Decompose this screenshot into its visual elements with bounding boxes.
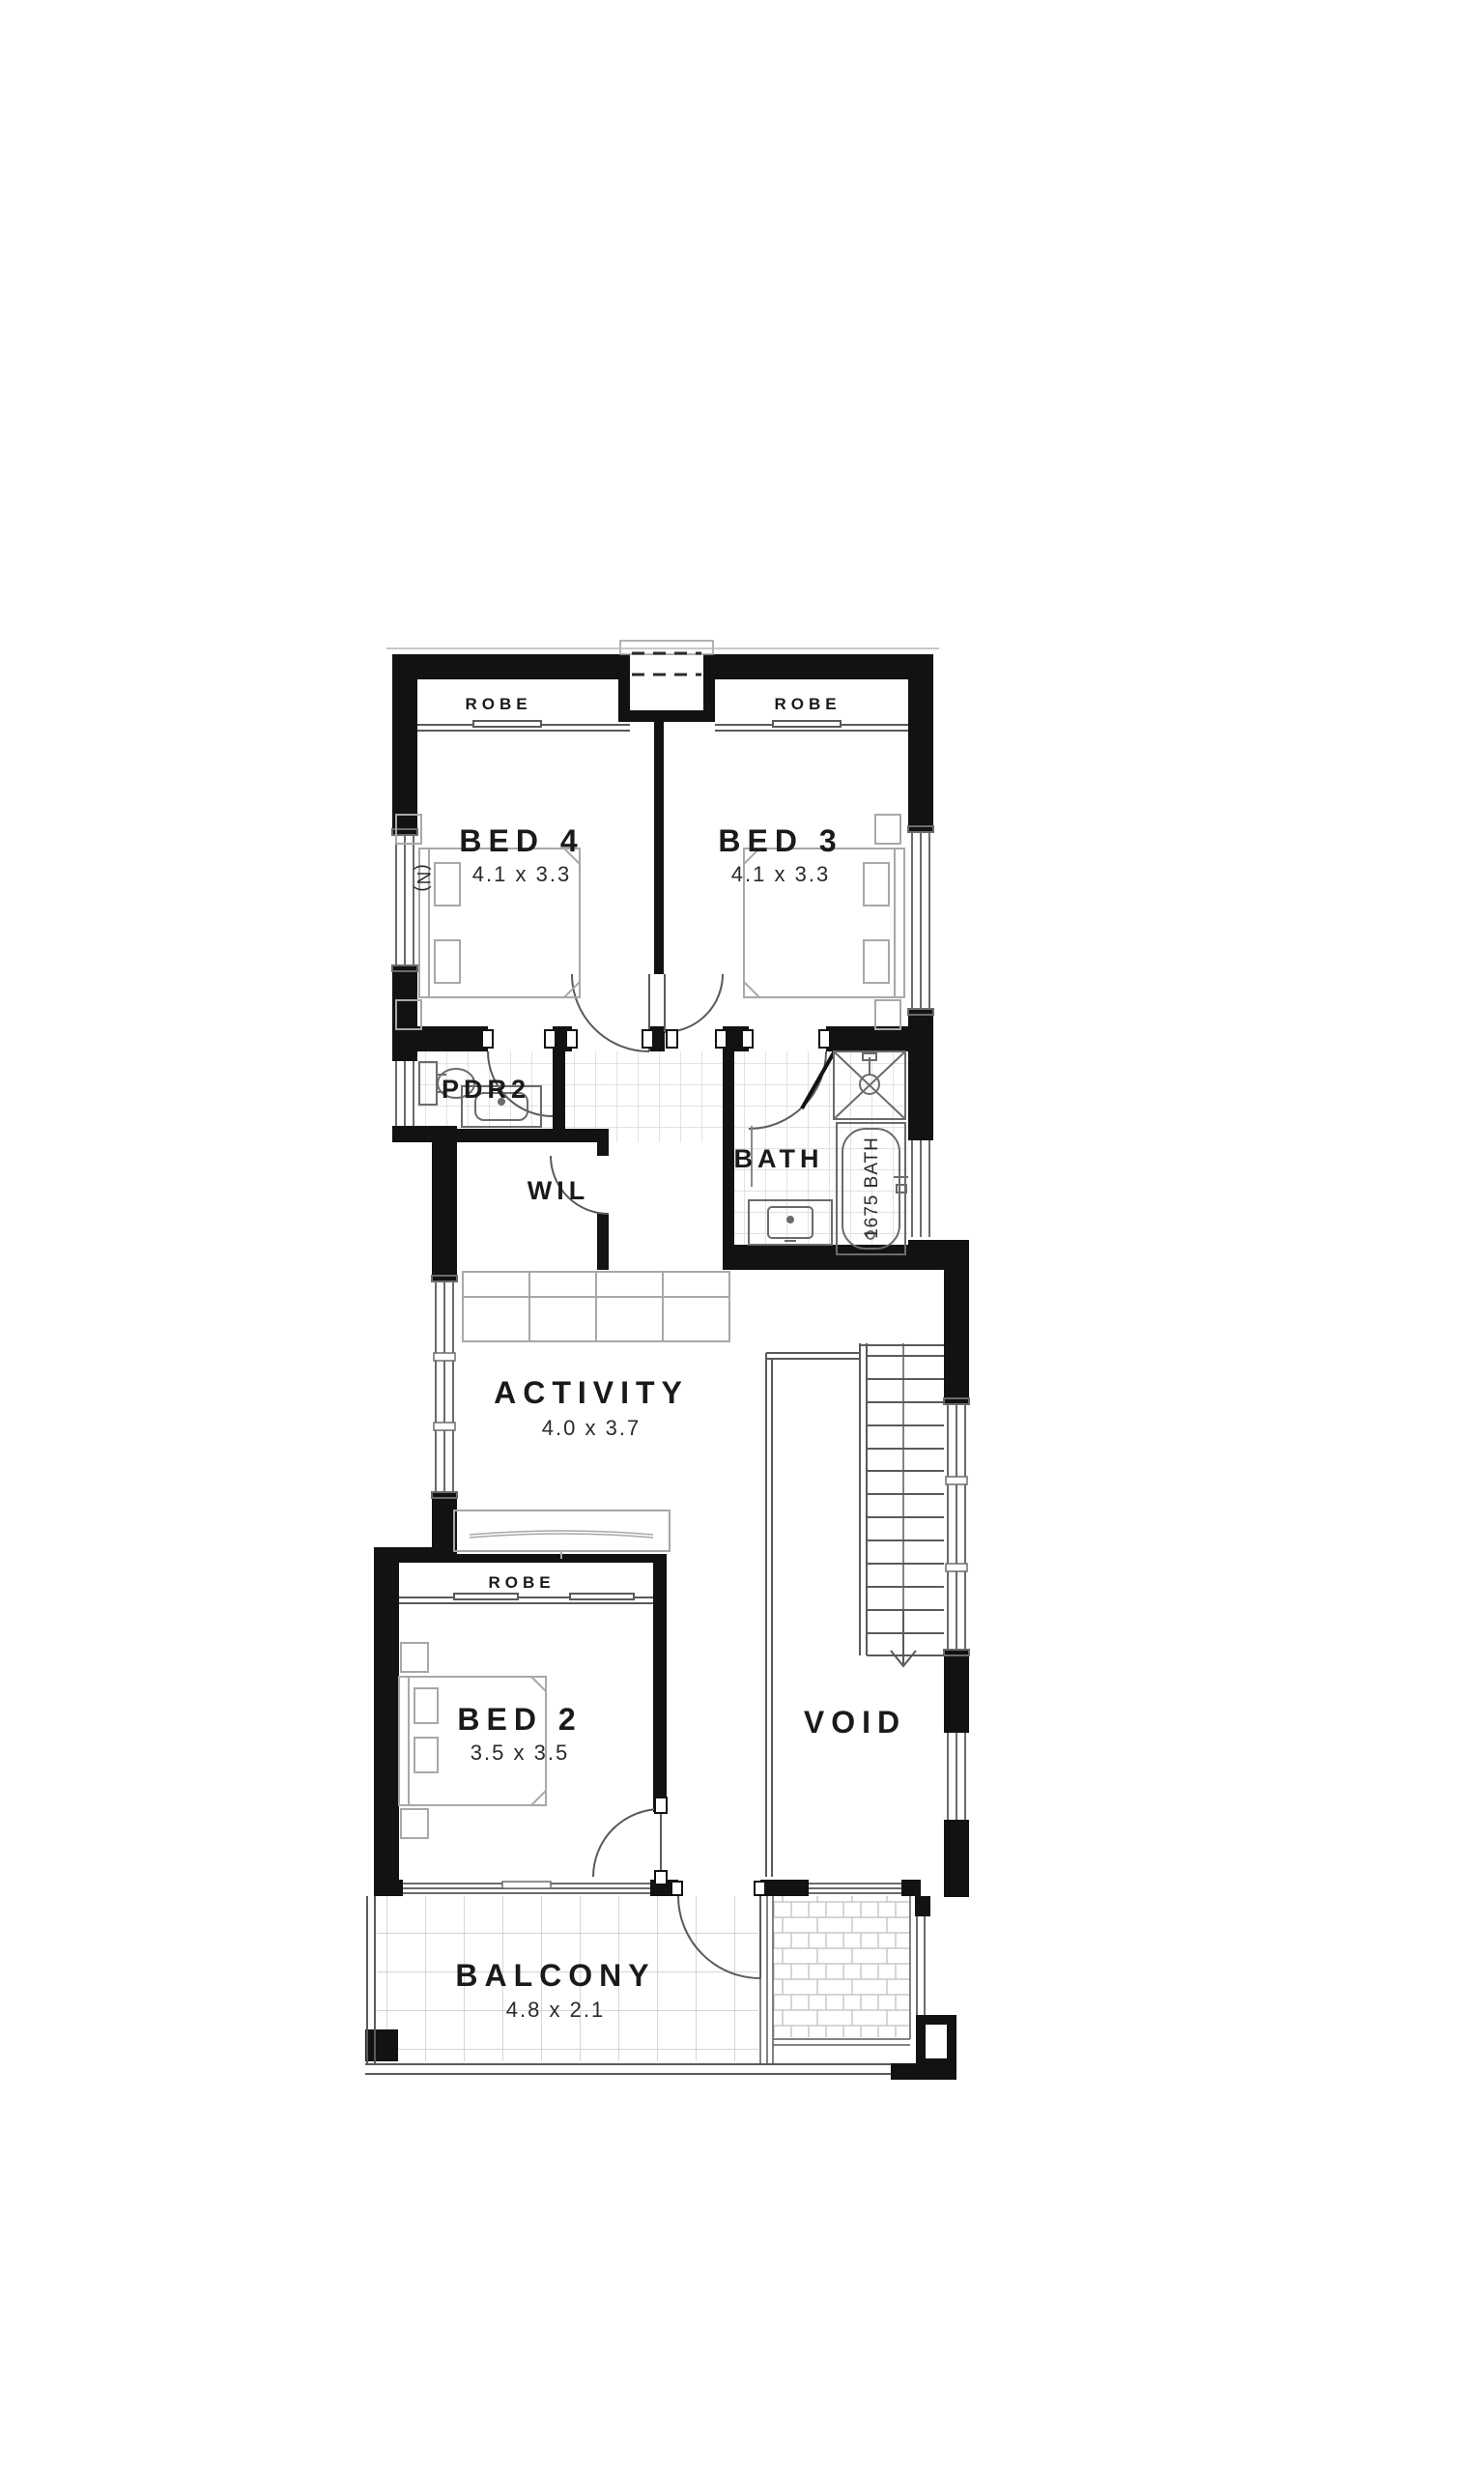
robe-label-top-right: ROBE (774, 695, 841, 713)
wall-balcony-post-right (901, 1880, 921, 1896)
window-void-right (948, 1733, 965, 1820)
wall-left-upper (392, 654, 417, 829)
robe-label-bed2: ROBE (488, 1573, 555, 1592)
hall-tile-floor (565, 1051, 723, 1142)
floor-plan-canvas: ROBE ROBE BED 4 4.1 x 3.3 BED 3 4.1 x 3.… (0, 0, 1484, 2474)
wall-bed2-robe-top (399, 1554, 653, 1563)
room-label-bed3: BED 3 (718, 823, 842, 858)
wall-wil-right-b (597, 1214, 609, 1270)
walls (365, 654, 969, 2080)
room-dims-bed2: 3.5 x 3.5 (471, 1740, 569, 1765)
room-dims-bed3: 4.1 x 3.3 (731, 862, 830, 886)
windows (392, 826, 969, 2015)
room-dims-bed4: 4.1 x 3.3 (472, 862, 571, 886)
window-stairs-right (944, 1398, 969, 1655)
window-balcony-right (809, 1884, 901, 1893)
window-brick-right (917, 1916, 925, 2015)
tub-label: 1675 BATH (862, 1136, 882, 1239)
wall-balcony-nib-right (915, 1896, 930, 1916)
room-label-bath: BATH (734, 1144, 824, 1173)
niche-bottom-wall (618, 710, 715, 722)
window-bath-right (912, 1140, 929, 1237)
furniture (396, 815, 908, 1838)
wall-right-upper (908, 654, 933, 826)
stair-treads (867, 1356, 944, 1655)
wall-right-stair-bottom (944, 1655, 969, 1733)
wall-balcony-post-mid (760, 1880, 809, 1896)
wall-activity-left-upper (432, 1140, 457, 1276)
room-label-pdr2: PDR2 (442, 1075, 530, 1104)
room-dims-activity: 4.0 x 3.7 (542, 1416, 641, 1440)
wall-pdr2-right (553, 1051, 565, 1129)
activity-cabinet (463, 1272, 729, 1341)
robe-rail-top-right (715, 721, 908, 731)
room-label-bed4: BED 4 (459, 823, 584, 858)
wall-bed2-left (374, 1547, 399, 1880)
wall-top-right (703, 654, 933, 679)
activity-desk (454, 1510, 670, 1559)
door-bed4 (572, 974, 649, 1051)
door-bed3 (665, 974, 723, 1032)
window-bed3-right (908, 826, 933, 1015)
window-balcony-left (403, 1882, 650, 1893)
staircase (766, 1343, 944, 1877)
corner-post-inset (926, 2025, 947, 2058)
wall-right-bath-step (908, 1240, 969, 1270)
wall-top-left (392, 654, 630, 679)
floor-plan-page: ROBE ROBE BED 4 4.1 x 3.3 BED 3 4.1 x 3.… (0, 0, 1484, 2474)
room-label-void: VOID (804, 1705, 906, 1740)
robe-label-top-left: ROBE (465, 695, 531, 713)
window-activity-left (432, 1276, 457, 1498)
window-pdr2-left (396, 1061, 414, 1126)
wall-bath-left (723, 1051, 734, 1270)
wall-bed-divider (654, 722, 664, 974)
wall-bottom-bar-br (891, 2063, 956, 2080)
wall-right-void (944, 1820, 969, 1897)
robe-rail-bed2 (399, 1594, 653, 1603)
void-outline (766, 1353, 860, 1877)
room-dims-balcony: 4.8 x 2.1 (506, 1998, 605, 2022)
robe-rail-top-left (417, 721, 630, 731)
room-label-balcony: BALCONY (455, 1958, 655, 1993)
north-label: (N) (413, 864, 433, 892)
wall-pdr2-bottom (392, 1129, 609, 1142)
balcony-brick-floor (773, 1896, 910, 2037)
wall-bed2-right (653, 1554, 667, 1812)
wall-right-stair-top (944, 1270, 969, 1398)
room-label-activity: ACTIVITY (494, 1375, 689, 1410)
room-label-bed2: BED 2 (457, 1702, 582, 1737)
window-bed4-left (392, 829, 417, 971)
wall-balcony-post-left (374, 1880, 403, 1896)
room-label-wil: WIL (528, 1176, 589, 1205)
stair-down-arrow (891, 1610, 916, 1666)
wall-wil-right-a (597, 1142, 609, 1156)
door-bed2 (593, 1809, 661, 1877)
wall-corner-post-bl (365, 2029, 398, 2061)
